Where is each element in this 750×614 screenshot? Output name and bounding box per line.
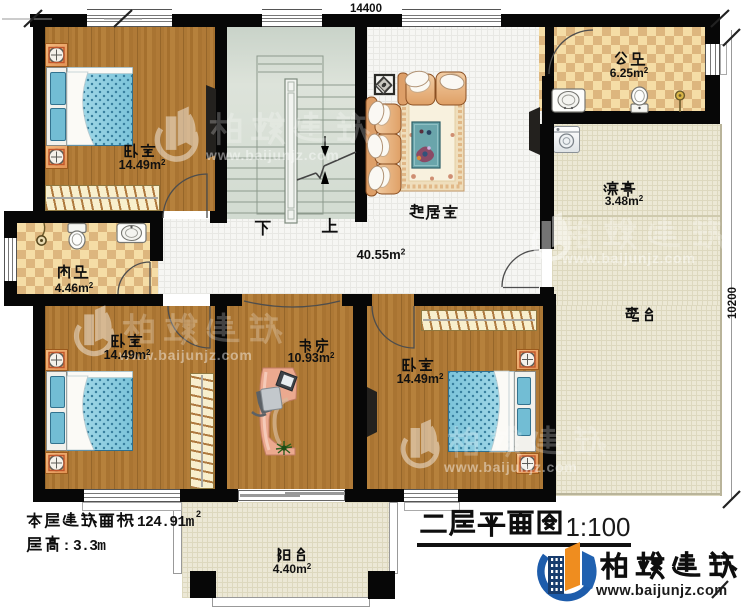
svg-text:2: 2 bbox=[196, 509, 201, 519]
svg-text:3.48m2: 3.48m2 bbox=[605, 194, 644, 208]
svg-text::: : bbox=[130, 513, 135, 530]
svg-text:124.91m: 124.91m bbox=[137, 515, 195, 531]
svg-text:10.93m2: 10.93m2 bbox=[288, 351, 335, 365]
svg-text::: : bbox=[64, 537, 69, 554]
svg-text:14.49m2: 14.49m2 bbox=[119, 158, 166, 172]
svg-text:1:100: 1:100 bbox=[565, 512, 630, 542]
svg-text:www.baijunjz.com: www.baijunjz.com bbox=[595, 583, 728, 599]
svg-text:4.40m2: 4.40m2 bbox=[273, 562, 312, 576]
svg-text:3.3m: 3.3m bbox=[73, 539, 106, 555]
svg-text:6.25m2: 6.25m2 bbox=[610, 66, 649, 80]
svg-text:4.46m2: 4.46m2 bbox=[55, 281, 94, 295]
svg-text:40.55m2: 40.55m2 bbox=[357, 247, 406, 263]
svg-text:14.49m2: 14.49m2 bbox=[397, 372, 444, 386]
svg-text:www.baijunjz.com: www.baijunjz.com bbox=[561, 250, 696, 266]
svg-text:14400: 14400 bbox=[350, 3, 382, 15]
svg-text:www.baijunjz.com: www.baijunjz.com bbox=[205, 147, 340, 163]
svg-text:10200: 10200 bbox=[727, 287, 739, 319]
svg-text:www.baijunjz.com: www.baijunjz.com bbox=[443, 459, 578, 475]
svg-text:14.49m2: 14.49m2 bbox=[104, 348, 151, 362]
